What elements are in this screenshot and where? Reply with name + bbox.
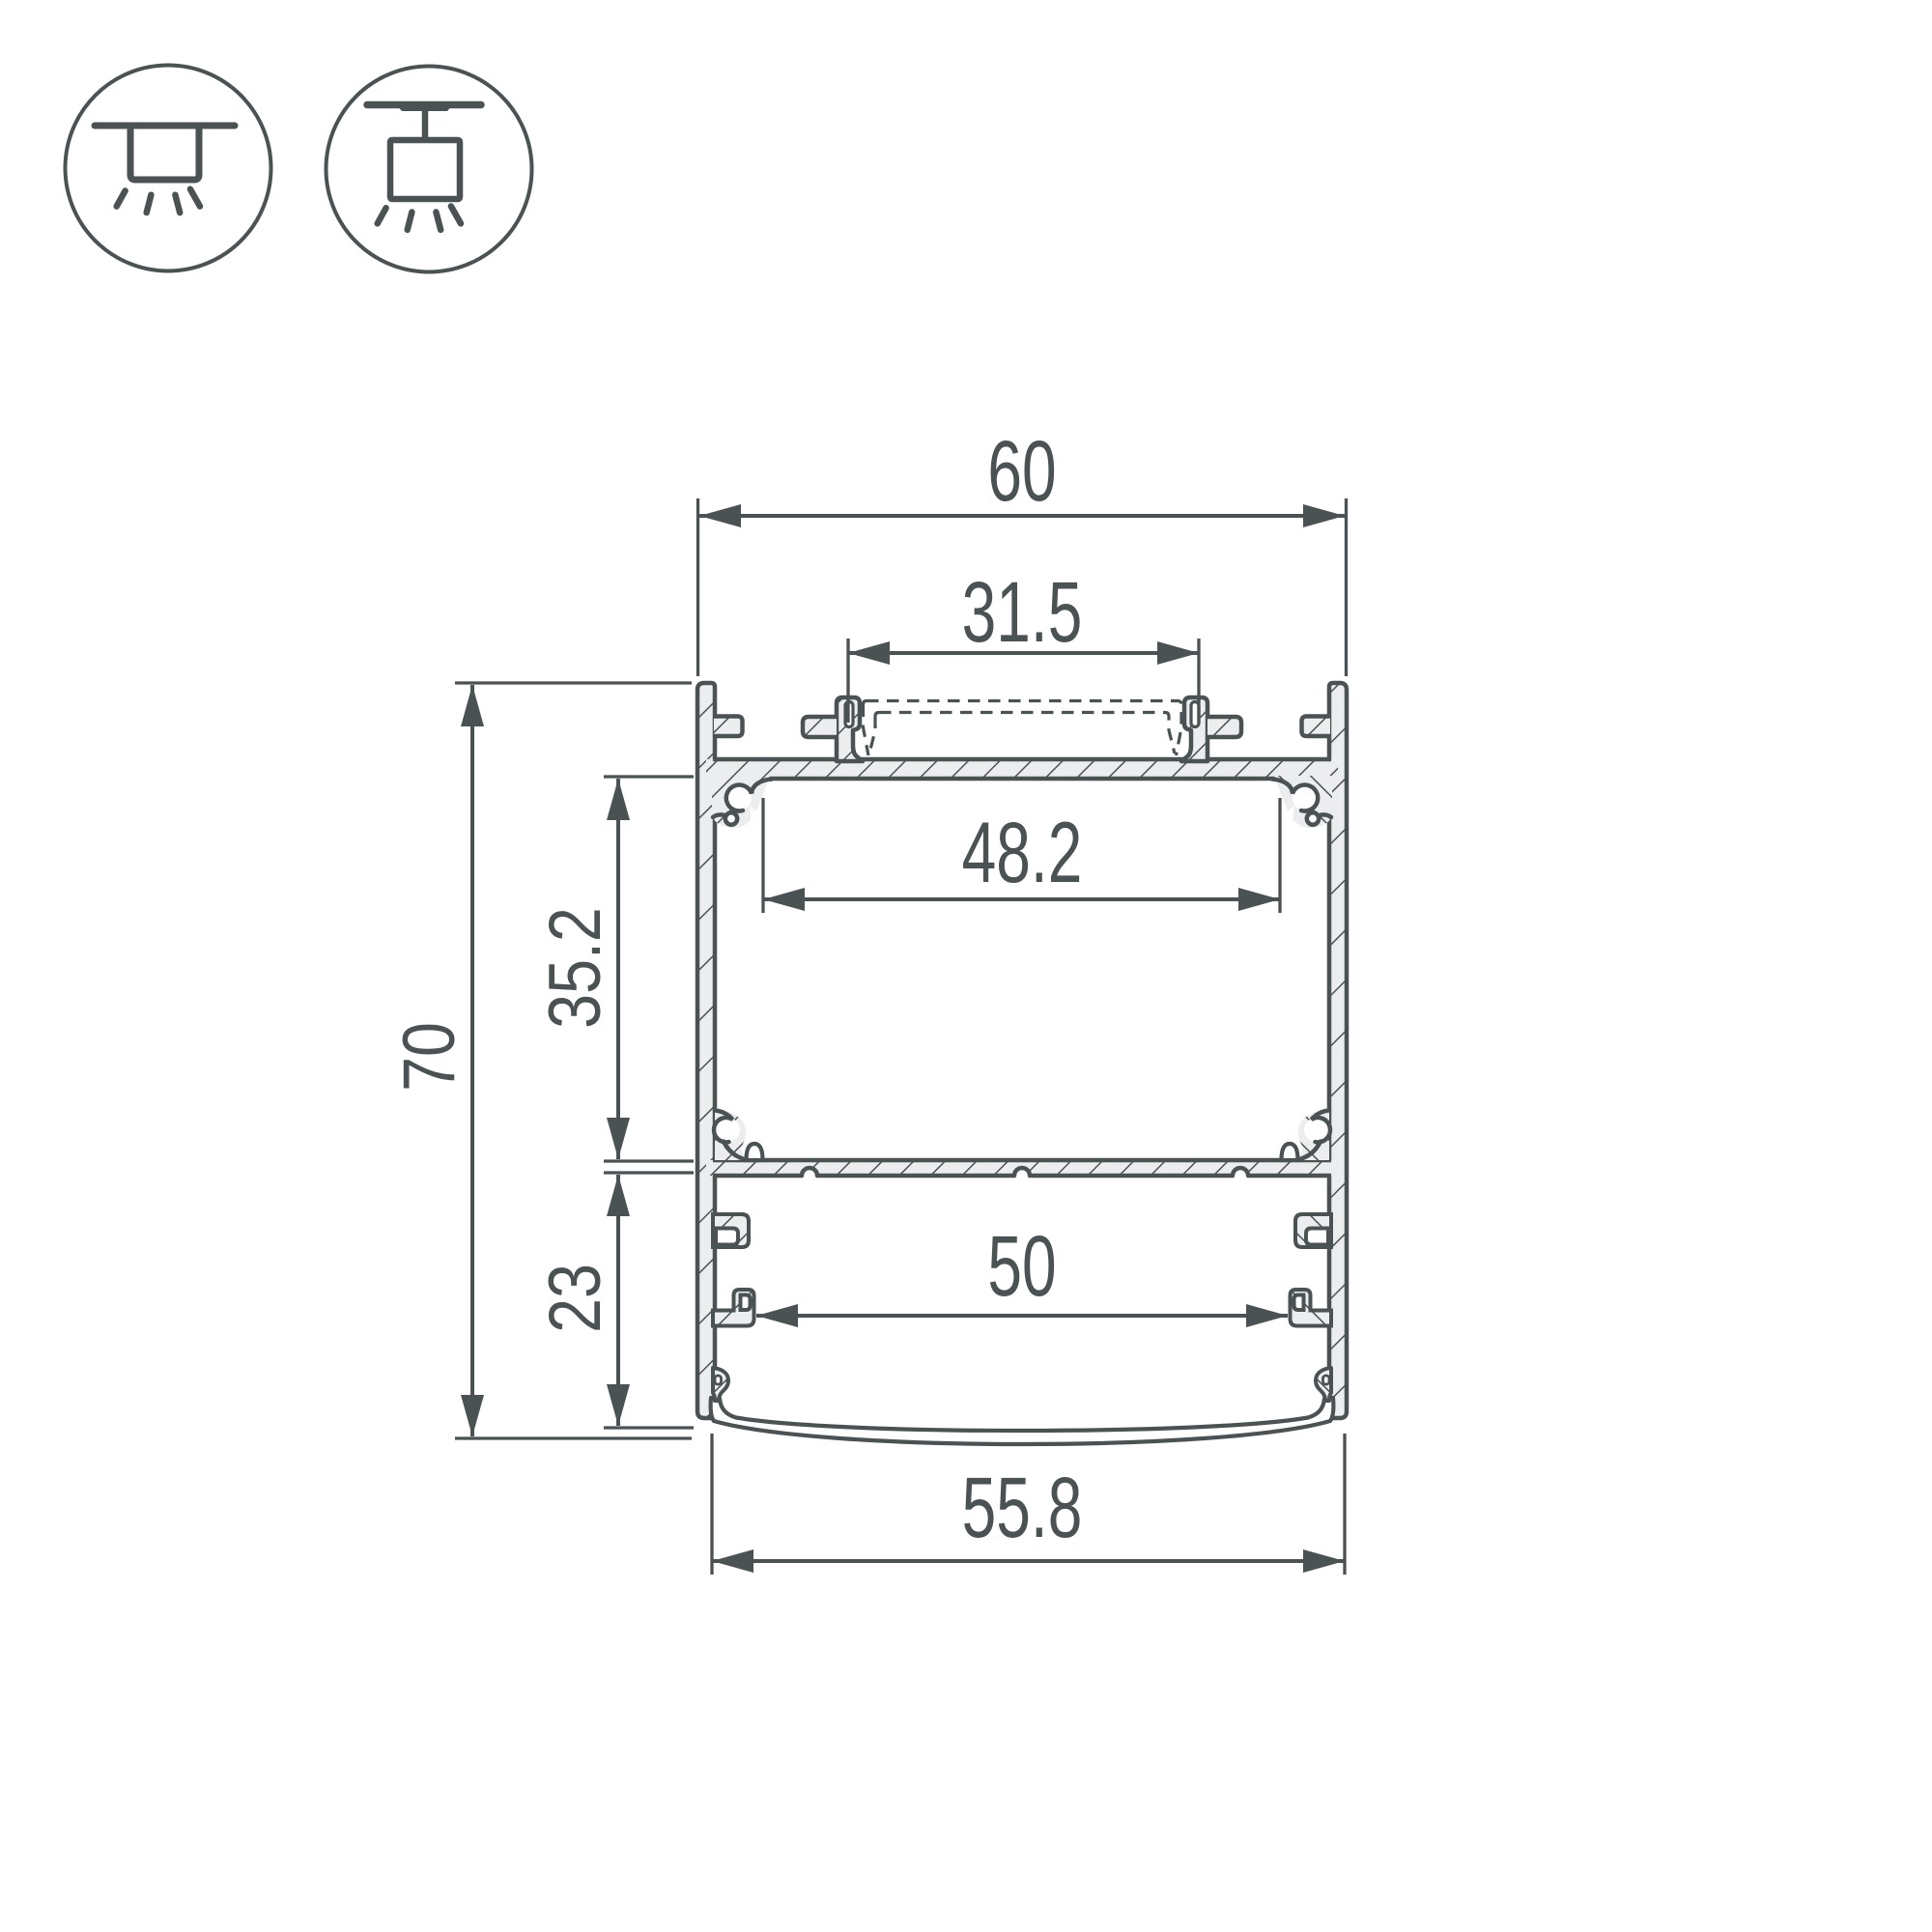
svg-text:60: 60: [987, 424, 1056, 520]
svg-text:35.2: 35.2: [533, 907, 615, 1029]
svg-text:55.8: 55.8: [962, 1461, 1083, 1556]
svg-text:23: 23: [533, 1264, 615, 1333]
svg-text:31.5: 31.5: [962, 565, 1083, 661]
svg-text:70: 70: [387, 1022, 469, 1092]
svg-text:50: 50: [987, 1219, 1056, 1315]
svg-text:48.2: 48.2: [962, 806, 1083, 901]
